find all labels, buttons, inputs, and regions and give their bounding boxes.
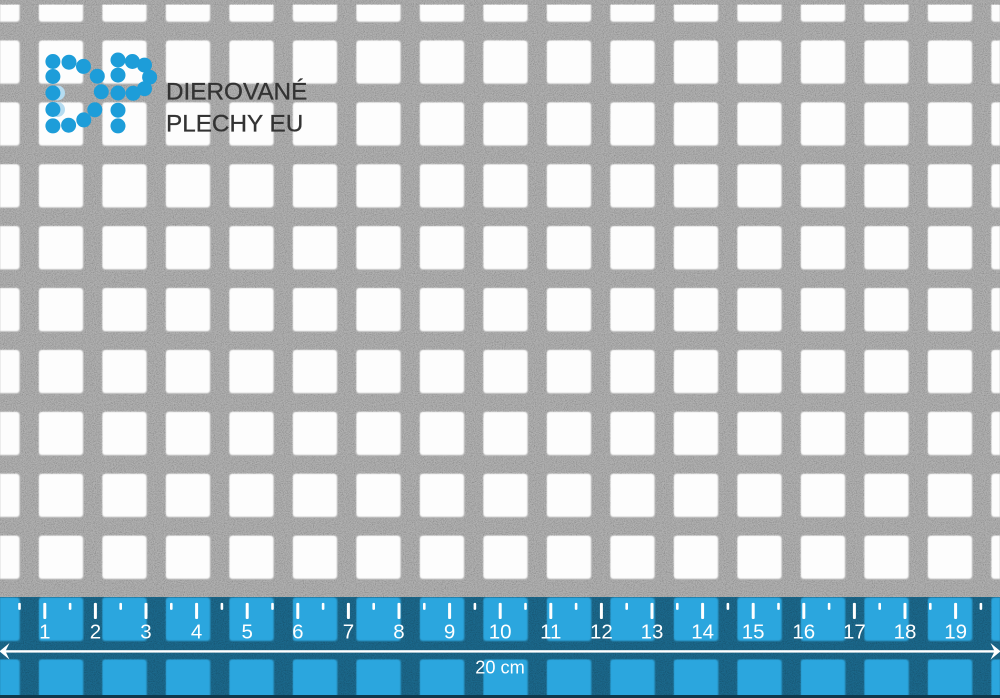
svg-text:2: 2 xyxy=(90,621,101,644)
svg-text:19: 19 xyxy=(944,621,967,644)
svg-text:7: 7 xyxy=(343,621,354,644)
svg-text:4: 4 xyxy=(191,621,202,644)
svg-text:9: 9 xyxy=(444,621,455,644)
svg-text:3: 3 xyxy=(140,621,151,644)
svg-text:11: 11 xyxy=(540,621,561,644)
svg-text:18: 18 xyxy=(894,621,917,644)
svg-text:PLECHY EU: PLECHY EU xyxy=(166,111,303,138)
svg-text:15: 15 xyxy=(742,621,765,644)
svg-text:8: 8 xyxy=(393,621,404,644)
svg-text:17: 17 xyxy=(843,621,866,644)
svg-text:DIEROVANÉ: DIEROVANÉ xyxy=(166,79,307,106)
svg-text:10: 10 xyxy=(489,621,512,644)
svg-text:20 cm: 20 cm xyxy=(475,657,525,677)
svg-text:14: 14 xyxy=(691,621,714,644)
svg-text:6: 6 xyxy=(292,621,303,644)
svg-text:12: 12 xyxy=(590,621,613,644)
svg-text:13: 13 xyxy=(641,621,664,644)
svg-text:5: 5 xyxy=(241,621,252,644)
svg-text:16: 16 xyxy=(792,621,815,644)
svg-text:1: 1 xyxy=(39,621,50,644)
